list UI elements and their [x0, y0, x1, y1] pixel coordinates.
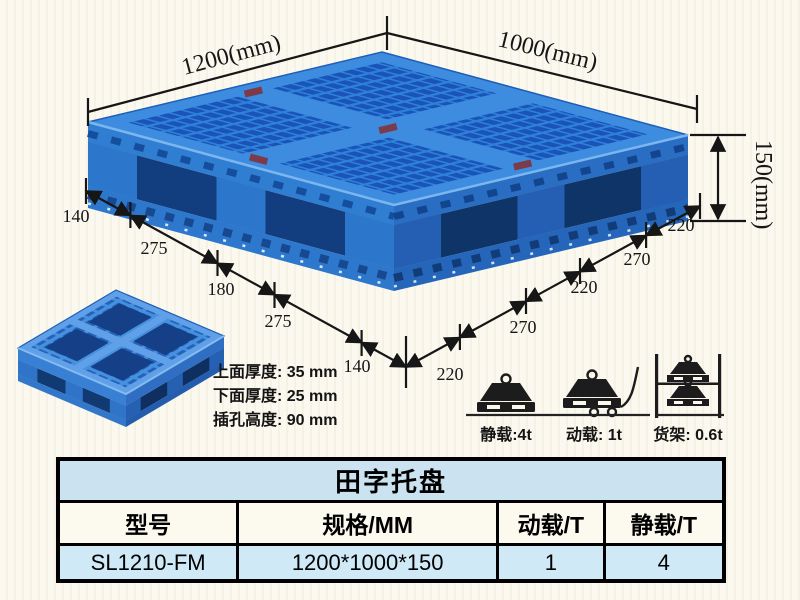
cell-size: 1200*1000*150 [238, 545, 498, 582]
cell-dynamic-load: 1 [498, 545, 605, 582]
dynamic-load-label: 动载: 1t [566, 426, 623, 444]
dim-seg-label: 270 [624, 249, 651, 269]
dim-seg-label: 220 [437, 364, 464, 384]
dim-label-height: 150(mm) [750, 140, 776, 229]
dim-seg-label: 270 [510, 317, 537, 337]
static-load-label: 静载:4t [480, 425, 532, 444]
static-load-icon [477, 375, 535, 413]
col-header-static-load: 静载/T [604, 502, 724, 545]
thickness-notes: 上面厚度: 35 mm 下面厚度: 25 mm 插孔高度: 90 mm [213, 362, 337, 429]
table-row: SL1210-FM 1200*1000*150 1 4 [58, 545, 724, 582]
thickness-note-slot: 插孔高度: 90 mm [213, 410, 337, 429]
dim-seg-label: 140 [63, 206, 90, 226]
spec-table-title: 田字托盘 [58, 459, 724, 502]
rack-load-icon [655, 354, 721, 418]
dim-seg-label: 180 [208, 279, 235, 299]
col-header-dynamic-load: 动载/T [498, 502, 605, 545]
col-header-model: 型号 [58, 502, 238, 545]
product-spec-sheet: 1200(mm) 1000(mm) 150(mm) 140 275 180 27… [0, 0, 800, 600]
dimension-height-150: 150(mm) [690, 135, 776, 229]
dynamic-load-icon [563, 367, 638, 416]
small-pallet [18, 290, 224, 427]
thickness-note-top: 上面厚度: 35 mm [213, 362, 337, 381]
dim-seg-label: 220 [571, 277, 598, 297]
thickness-note-bottom: 下面厚度: 25 mm [213, 386, 337, 405]
dim-seg-label: 140 [344, 356, 371, 376]
dim-seg-label: 275 [141, 238, 168, 258]
cell-model: SL1210-FM [58, 545, 238, 582]
dim-label-width: 1000(mm) [495, 26, 600, 75]
load-ratings: 静载:4t 动载: 1t 货架: 0.6t [466, 354, 724, 444]
rack-load-label: 货架: 0.6t [653, 425, 723, 444]
cell-static-load: 4 [604, 545, 724, 582]
dim-seg-label: 275 [265, 311, 292, 331]
spec-table: 田字托盘 型号 规格/MM 动载/T 静载/T SL1210-FM 1200*1… [56, 457, 726, 583]
spec-table-grid: 田字托盘 型号 规格/MM 动载/T 静载/T SL1210-FM 1200*1… [56, 457, 726, 583]
dim-seg-label: 220 [668, 215, 695, 235]
col-header-size: 规格/MM [238, 502, 498, 545]
